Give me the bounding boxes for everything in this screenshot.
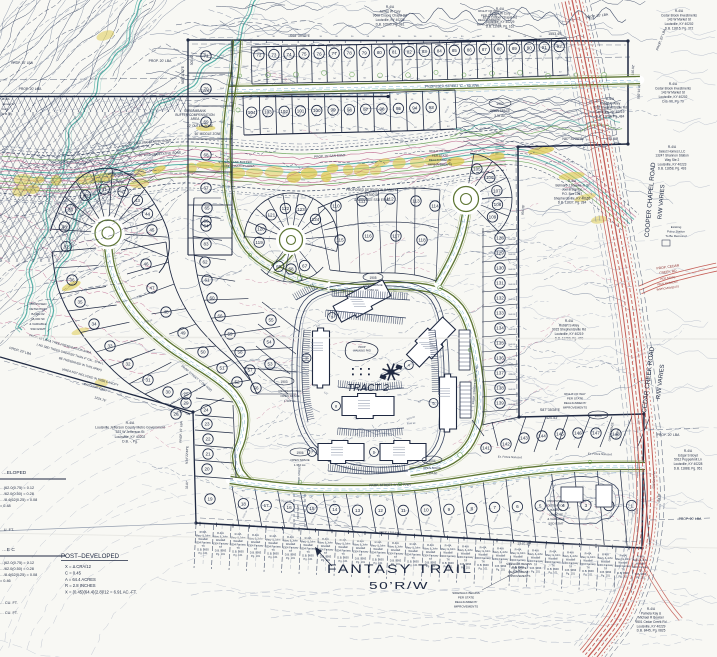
svg-text:Woodall: Woodall	[583, 559, 593, 563]
svg-text:R-4/A: R-4/A	[567, 551, 574, 555]
svg-text:IMPROVEMENTS: IMPROVEMENTS	[428, 163, 452, 167]
svg-text:Pg. 101: Pg. 101	[601, 574, 610, 578]
svg-text:Trl: Trl	[307, 550, 310, 554]
svg-text:Mary & John: Mary & John	[563, 554, 578, 558]
svg-text:R-4/A: R-4/A	[126, 421, 135, 425]
svg-text:38: 38	[62, 225, 68, 230]
svg-text:Woodall: Woodall	[426, 550, 436, 554]
svg-text:99: 99	[331, 108, 337, 113]
svg-text:TRACT 2: TRACT 2	[347, 383, 389, 394]
svg-text:9304 Fantasy: 9304 Fantasy	[335, 548, 351, 552]
svg-text:34: 34	[91, 322, 97, 327]
svg-text:86: 86	[467, 48, 473, 53]
svg-text:D.B. 9993: D.B. 9993	[355, 556, 367, 560]
svg-text:94: 94	[412, 106, 418, 111]
svg-text:45: 45	[149, 228, 155, 233]
svg-text:141: 141	[482, 446, 490, 451]
svg-text:COMPENSATION AREA: COMPENSATION AREA	[222, 164, 255, 168]
svg-text:…U. FT.: …U. FT.	[0, 528, 14, 532]
svg-text:Louisville Jefferson County Me: Louisville Jefferson County Metro Govern…	[95, 426, 165, 430]
svg-text:165.02': 165.02'	[631, 64, 636, 75]
svg-text:22' OUTER ZONE: 22' OUTER ZONE	[100, 180, 124, 184]
svg-text:1902: 1902	[496, 102, 504, 106]
svg-text:9040 SF: 9040 SF	[508, 359, 516, 361]
svg-text:R-4/A: R-4/A	[497, 547, 504, 551]
svg-text:18: 18	[241, 501, 247, 506]
svg-text:R-4/A: R-4/A	[287, 535, 294, 539]
svg-text:Mary & John: Mary & John	[458, 548, 473, 552]
svg-text:Pg. 101: Pg. 101	[199, 551, 208, 555]
svg-text:RIGHT OF WAY: RIGHT OF WAY	[429, 149, 451, 153]
svg-text:934.36': 934.36'	[521, 204, 526, 215]
svg-text:1.36± Ac.: 1.36± Ac.	[426, 471, 438, 475]
svg-text:C = 0.45: C = 0.45	[65, 570, 82, 575]
svg-text:PROP. STREET 'A' (50' R/W): PROP. STREET 'A' (50' R/W)	[369, 483, 410, 488]
svg-text:120: 120	[257, 227, 265, 232]
svg-text:44: 44	[145, 211, 151, 216]
svg-text:Mary & John: Mary & John	[528, 552, 543, 556]
svg-text:23: 23	[204, 422, 210, 427]
svg-text:103: 103	[264, 109, 272, 114]
svg-text:WALKING PAD: WALKING PAD	[353, 348, 371, 352]
svg-text:D.B. 9993: D.B. 9993	[600, 570, 612, 574]
svg-text:Woodall: Woodall	[356, 546, 366, 550]
svg-text:OPEN SPACE: OPEN SPACE	[290, 458, 309, 462]
svg-text:Woodall: Woodall	[496, 554, 506, 558]
svg-text:IMPROVEMENTS: IMPROVEMENTS	[563, 406, 587, 410]
svg-text:Pg. 101: Pg. 101	[514, 569, 523, 573]
svg-text:46: 46	[143, 262, 149, 267]
svg-text:R-4/A: R-4/A	[445, 544, 452, 548]
svg-text:Woodall: Woodall	[391, 548, 401, 552]
svg-text:85: 85	[452, 48, 458, 53]
svg-text:21: 21	[205, 452, 211, 457]
svg-text:Woodall: Woodall	[566, 558, 576, 562]
svg-text:96: 96	[379, 107, 385, 112]
svg-text:…(62.0(0.75) = 0.12: …(62.0(0.75) = 0.12	[0, 561, 34, 565]
svg-text:104: 104	[248, 110, 256, 115]
svg-text:FANTASY TRAIL: FANTASY TRAIL	[327, 564, 473, 576]
svg-text:35: 35	[77, 300, 83, 305]
svg-text:119: 119	[255, 240, 263, 245]
svg-text:Woodall: Woodall	[513, 555, 523, 559]
svg-text:Trl: Trl	[377, 554, 380, 558]
svg-text:Mary & John: Mary & John	[511, 551, 526, 555]
svg-text:PROP. STREET 'F': PROP. STREET 'F'	[230, 120, 235, 144]
svg-text:IMPROVEMENTS: IMPROVEMENTS	[454, 605, 478, 609]
svg-text:…ELOPED: …ELOPED	[2, 470, 27, 476]
svg-text:1.33± Ac.: 1.33± Ac.	[284, 399, 297, 403]
svg-text:124: 124	[312, 217, 320, 222]
svg-text:77: 77	[332, 51, 338, 56]
svg-text:136: 136	[496, 356, 504, 361]
svg-text:Trl: Trl	[534, 563, 537, 567]
svg-text:131: 131	[496, 281, 504, 286]
svg-text:9040 SF: 9040 SF	[508, 314, 516, 316]
svg-text:9304 Fantasy: 9304 Fantasy	[230, 543, 246, 547]
svg-text:Pg. 101: Pg. 101	[549, 571, 558, 575]
svg-text:Michael R Bowser: Michael R Bowser	[638, 616, 665, 620]
svg-text:1003: 1003	[594, 414, 601, 418]
svg-text:PROP. 20' LBA: PROP. 20' LBA	[149, 59, 173, 63]
svg-text:PER STATE: PER STATE	[458, 596, 474, 600]
svg-text:78: 78	[347, 51, 353, 56]
svg-text:9304 Fantasy: 9304 Fantasy	[580, 562, 596, 566]
svg-text:Mary & John: Mary & John	[388, 544, 403, 548]
svg-text:Woodall: Woodall	[531, 556, 541, 560]
svg-text:D.B. 9993: D.B. 9993	[372, 557, 384, 561]
svg-text:9040 SF: 9040 SF	[508, 374, 516, 376]
svg-text:R-4/A: R-4/A	[515, 548, 522, 552]
svg-text:Pg. 101: Pg. 101	[496, 568, 505, 572]
svg-text:31: 31	[145, 378, 151, 383]
svg-text:RIGHT OF WAY: RIGHT OF WAY	[564, 392, 586, 396]
svg-text:13247 Shannon Station: 13247 Shannon Station	[655, 154, 689, 158]
svg-text:22: 22	[205, 437, 211, 442]
svg-text:1004: 1004	[428, 459, 435, 463]
svg-text:Mary & John: Mary & John	[423, 546, 438, 550]
svg-text:D.B. 9993: D.B. 9993	[617, 571, 629, 575]
svg-text:Trl: Trl	[604, 567, 607, 571]
svg-text:Mary & John: Mary & John	[476, 549, 491, 553]
svg-text:138: 138	[496, 386, 504, 391]
svg-text:9304 Fantasy: 9304 Fantasy	[615, 564, 631, 568]
svg-text:114: 114	[431, 204, 439, 209]
svg-text:9304 Fantasy: 9304 Fantasy	[248, 543, 264, 547]
svg-text:133: 133	[496, 311, 504, 316]
svg-text:Trl: Trl	[587, 566, 590, 570]
svg-text:16: 16	[287, 505, 293, 510]
svg-text:9304 Fantasy: 9304 Fantasy	[195, 541, 211, 545]
svg-text:N05°11′02″E: N05°11′02″E	[181, 66, 185, 84]
svg-text:9304 Fantasy: 9304 Fantasy	[528, 559, 544, 563]
svg-text:PROP. 15' LBA: PROP. 15' LBA	[179, 420, 184, 442]
svg-text:9040 SF: 9040 SF	[508, 269, 516, 271]
svg-text:101: 101	[297, 109, 305, 114]
svg-text:72: 72	[256, 53, 262, 58]
svg-text:39: 39	[68, 207, 74, 212]
svg-text:144’: 144’	[220, 88, 225, 90]
svg-text:Trl: Trl	[499, 561, 502, 565]
svg-text:SSD ESMT: SSD ESMT	[548, 522, 564, 526]
svg-text:Trl: Trl	[342, 552, 345, 556]
svg-text:59: 59	[227, 332, 233, 337]
svg-text:= 0.46: = 0.46	[0, 579, 11, 583]
svg-text:76: 76	[317, 51, 323, 56]
svg-text:84: 84	[437, 49, 443, 54]
svg-text:90: 90	[527, 45, 533, 50]
svg-text:9015 Shepherdsville Rd: 9015 Shepherdsville Rd	[552, 328, 586, 332]
svg-text:Woodall: Woodall	[636, 562, 646, 566]
svg-text:9040 SF: 9040 SF	[508, 344, 516, 346]
svg-text:Pg. 101: Pg. 101	[619, 575, 628, 579]
svg-text:…/8.4(62(0.25) = 0.08: …/8.4(62(0.25) = 0.08	[0, 573, 37, 577]
svg-text:OPEN SPACE: OPEN SPACE	[363, 283, 382, 287]
svg-text:Trl: Trl	[237, 546, 240, 550]
svg-text:AREA: AREA	[191, 117, 201, 121]
svg-text:Pg. 101: Pg. 101	[286, 556, 295, 560]
svg-text:Trl: Trl	[447, 558, 450, 562]
svg-text:102: 102	[280, 109, 288, 114]
svg-text:49: 49	[180, 331, 186, 336]
svg-text:52: 52	[234, 380, 240, 385]
svg-text:5912 Pepperknit Ln: 5912 Pepperknit Ln	[674, 458, 702, 462]
svg-text:Woodall: Woodall	[461, 552, 471, 556]
svg-text:PROP. STREET: PROP. STREET	[297, 465, 302, 484]
svg-text:X = Δ CRA/12: X = Δ CRA/12	[65, 564, 92, 569]
svg-text:Mary & John: Mary & John	[493, 550, 508, 554]
svg-text:James W: James W	[2, 102, 15, 106]
svg-text:D.B. 9993: D.B. 9993	[215, 549, 227, 553]
svg-text:82: 82	[407, 49, 413, 54]
svg-text:458.96': 458.96'	[657, 493, 661, 503]
svg-text:Mary & John: Mary & John	[266, 537, 281, 541]
svg-text:93: 93	[429, 105, 435, 110]
svg-text:… CU. FT.: … CU. FT.	[0, 601, 18, 605]
svg-text:Woodall: Woodall	[321, 544, 331, 548]
svg-text:D.B. -, Pg.: D.B. -, Pg.	[122, 439, 138, 443]
svg-text:74: 74	[286, 52, 292, 57]
svg-text:PROPOSED DETENTION BASIN #2: PROPOSED DETENTION BASIN #2	[346, 188, 398, 192]
svg-text:67: 67	[203, 186, 209, 191]
svg-text:Mary & John: Mary & John	[616, 557, 631, 561]
svg-text:Mary & John: Mary & John	[353, 542, 368, 546]
svg-text:OPEN SPACE: OPEN SPACE	[280, 394, 299, 398]
svg-text:57: 57	[247, 368, 253, 373]
svg-text:75: 75	[301, 52, 307, 57]
svg-text:50: 50	[200, 350, 206, 355]
svg-text:Woodall: Woodall	[251, 540, 261, 544]
svg-text:143: 143	[520, 436, 528, 441]
svg-text:80: 80	[377, 50, 383, 55]
svg-text:R-4/A: R-4/A	[462, 545, 469, 549]
svg-text:33.87': 33.87'	[185, 480, 189, 489]
svg-text:Trl: Trl	[517, 562, 520, 566]
svg-text:60' MIDDLE ZONE: 60' MIDDLE ZONE	[195, 132, 222, 136]
svg-text:Mary & John: Mary & John	[336, 541, 351, 545]
svg-text:41: 41	[102, 187, 108, 192]
svg-text:24,500 SF: 24,500 SF	[365, 193, 380, 197]
svg-text:Trl: Trl	[569, 565, 572, 569]
svg-text:Mary & John: Mary & John	[441, 547, 456, 551]
svg-text:Trl: Trl	[254, 547, 257, 551]
svg-text:Woodall: Woodall	[618, 561, 628, 565]
svg-text:9040 SF: 9040 SF	[508, 329, 516, 331]
svg-text:Mary & John: Mary & John	[581, 555, 596, 559]
svg-text:PROPOSED: PROPOSED	[547, 499, 565, 503]
svg-text:Trl: Trl	[219, 545, 222, 549]
svg-text:Woodall: Woodall	[601, 560, 611, 564]
svg-text:Pg. 101: Pg. 101	[216, 552, 225, 556]
svg-text:PROP: PROP	[358, 345, 366, 349]
svg-text:PER STATE: PER STATE	[432, 154, 448, 158]
svg-text:9015 Shepherdsville Rd: 9015 Shepherdsville Rd	[593, 106, 627, 110]
svg-text:9304 Fantasy: 9304 Fantasy	[300, 546, 316, 550]
svg-text:144’: 144’	[220, 220, 225, 222]
svg-text:28: 28	[173, 412, 179, 417]
svg-text:69: 69	[276, 264, 282, 269]
svg-text:52’: 52’	[418, 402, 422, 404]
svg-text:9304 Fantasy: 9304 Fantasy	[283, 545, 299, 549]
svg-text:Joel B Brerton: Joel B Brerton	[562, 188, 582, 192]
svg-text:79: 79	[362, 50, 368, 55]
svg-text:58: 58	[237, 350, 243, 355]
svg-text:Mary & John: Mary & John	[598, 556, 613, 560]
svg-text:70: 70	[203, 87, 209, 92]
svg-text:SSD ESMT: SSD ESMT	[30, 327, 46, 331]
svg-text:D.B. 9993: D.B. 9993	[267, 551, 279, 555]
svg-text:130: 130	[496, 266, 504, 271]
svg-text:Mary & John: Mary & John	[318, 540, 333, 544]
svg-text:113: 113	[412, 199, 420, 204]
svg-text:9304 Fantasy: 9304 Fantasy	[440, 554, 456, 558]
svg-text:116: 116	[364, 234, 372, 239]
svg-text:A = 64.4 ACRES: A = 64.4 ACRES	[65, 577, 96, 582]
svg-text:83: 83	[203, 242, 209, 247]
svg-text:143 W Market St: 143 W Market St	[661, 91, 685, 95]
svg-text:43: 43	[135, 198, 141, 203]
svg-text:134: 134	[496, 326, 504, 331]
svg-text:R-4/A: R-4/A	[427, 543, 434, 547]
svg-text:10: 10	[424, 508, 430, 513]
svg-text:9040 SF: 9040 SF	[508, 389, 516, 391]
svg-text:R-4/A: R-4/A	[217, 531, 224, 535]
svg-text:144’: 144’	[220, 55, 225, 57]
svg-text:Trl: Trl	[622, 568, 625, 572]
svg-text:139: 139	[496, 401, 504, 406]
svg-text:30: 30	[165, 390, 171, 395]
svg-text:…/8.4(62(0.25) = 0.08: …/8.4(62(0.25) = 0.08	[0, 498, 37, 502]
svg-text:D.B. 10530, Pg. 981: D.B. 10530, Pg. 981	[376, 22, 405, 26]
svg-text:9: 9	[448, 507, 451, 512]
svg-text:145: 145	[556, 432, 564, 437]
svg-text:5: 5	[539, 504, 542, 509]
svg-text:Trl: Trl	[482, 560, 485, 564]
svg-text:D.B. 9993: D.B. 9993	[582, 569, 594, 573]
svg-text:135: 135	[496, 341, 504, 346]
svg-text:51: 51	[219, 366, 225, 371]
svg-text:DETENTION: DETENTION	[29, 307, 46, 311]
svg-text:123: 123	[297, 207, 305, 212]
svg-text:129: 129	[496, 251, 504, 256]
svg-text:420.53': 420.53'	[546, 416, 558, 420]
svg-text:12: 12	[378, 508, 384, 513]
svg-text:110: 110	[332, 204, 340, 209]
svg-text:…E C: …E C	[2, 547, 15, 553]
svg-text:& VARIABLE: & VARIABLE	[547, 517, 564, 521]
svg-text:S87°35′28″E: S87°35′28″E	[540, 408, 561, 412]
svg-text:& VARIABLE: & VARIABLE	[29, 322, 46, 326]
svg-text:PROPOSED: PROPOSED	[29, 302, 47, 306]
svg-text:89: 89	[512, 46, 518, 51]
svg-text:42: 42	[120, 189, 126, 194]
svg-text:105: 105	[473, 167, 481, 172]
svg-text:Woodall: Woodall	[338, 545, 348, 549]
svg-text:D.B. 9993: D.B. 9993	[547, 567, 559, 571]
svg-text:9304 Fantasy: 9304 Fantasy	[388, 551, 404, 555]
svg-text:55: 55	[268, 318, 274, 323]
svg-text:115: 115	[336, 238, 344, 243]
svg-text:73: 73	[271, 52, 277, 57]
svg-text:Pg. 101: Pg. 101	[566, 572, 575, 576]
svg-text:108: 108	[494, 202, 502, 207]
svg-text:69: 69	[203, 120, 209, 125]
svg-text:1903: 1903	[280, 380, 287, 384]
svg-text:61: 61	[204, 278, 210, 283]
svg-text:16,400 SF: 16,400 SF	[549, 513, 563, 517]
svg-text:Trl: Trl	[289, 549, 292, 553]
svg-text:R-4/A: R-4/A	[252, 533, 259, 537]
svg-text:D.B. 8445, Pg. 0825: D.B. 8445, Pg. 0825	[637, 629, 666, 633]
svg-text:Pg. 101: Pg. 101	[234, 553, 243, 557]
svg-text:91: 91	[542, 45, 548, 50]
svg-text:68: 68	[203, 153, 209, 158]
svg-text:Woodall: Woodall	[548, 557, 558, 561]
svg-text:1906: 1906	[296, 451, 303, 455]
svg-text:147: 147	[592, 431, 600, 436]
svg-text:R-4/A: R-4/A	[270, 534, 277, 538]
svg-text:POST–DEVELOPED: POST–DEVELOPED	[61, 553, 120, 560]
svg-text:REALIGNMENT/: REALIGNMENT/	[455, 600, 478, 604]
svg-text:65: 65	[204, 206, 210, 211]
svg-text:20: 20	[204, 467, 210, 472]
svg-text:13: 13	[355, 508, 361, 513]
svg-text:66: 66	[217, 314, 223, 319]
svg-text:R-4/A: R-4/A	[410, 542, 417, 546]
svg-text:D.B. 9993: D.B. 9993	[565, 568, 577, 572]
svg-text:…(62.0(0.75) = 0.12: …(62.0(0.75) = 0.12	[0, 486, 34, 490]
svg-text:3.3± Ac.: 3.3± Ac.	[494, 114, 506, 118]
svg-text:56: 56	[253, 386, 259, 391]
svg-text:68: 68	[288, 267, 294, 272]
svg-text:N34°22′44″E: N34°22′44″E	[185, 446, 190, 464]
svg-text:88: 88	[497, 47, 503, 52]
svg-text:PROP. 20' LBA: PROP. 20' LBA	[11, 61, 33, 65]
svg-text:24: 24	[203, 408, 209, 413]
svg-text:25: 25	[183, 392, 189, 397]
svg-text:132: 132	[496, 296, 504, 301]
svg-text:9040 SF: 9040 SF	[508, 284, 516, 286]
svg-text:527 W Jefferson St: 527 W Jefferson St	[116, 430, 145, 434]
svg-text:11: 11	[401, 508, 406, 513]
svg-text:Pg. 101: Pg. 101	[251, 554, 260, 558]
svg-text:6: 6	[516, 504, 519, 509]
svg-text:9304 Fantasy: 9304 Fantasy	[265, 544, 281, 548]
svg-text:120’: 120’	[483, 503, 488, 505]
svg-text:D.B. 9993: D.B. 9993	[495, 564, 507, 568]
svg-text:64: 64	[203, 224, 209, 229]
svg-text:D.B. 9993: D.B. 9993	[512, 565, 524, 569]
svg-text:95: 95	[396, 106, 402, 111]
svg-text:D.B. 9993: D.B. 9993	[302, 553, 314, 557]
svg-text:R-4/A: R-4/A	[585, 552, 592, 556]
svg-text:R = 2.8 INCHES: R = 2.8 INCHES	[65, 583, 96, 588]
svg-text:R-4/A: R-4/A	[550, 550, 557, 554]
svg-text:Trl: Trl	[324, 551, 327, 555]
svg-text:& VARIABLE SSD ESMT: & VARIABLE SSD ESMT	[354, 198, 390, 202]
svg-text:142: 142	[502, 442, 510, 447]
svg-text:9304 Fantasy: 9304 Fantasy	[213, 542, 229, 546]
svg-text:Trl: Trl	[202, 544, 205, 548]
svg-text:D.B. 9993: D.B. 9993	[197, 548, 209, 552]
svg-text:Woodall: Woodall	[373, 547, 383, 551]
svg-text:Woodall: Woodall	[408, 549, 418, 553]
svg-text:87: 87	[482, 47, 488, 52]
svg-text:106: 106	[486, 175, 494, 180]
svg-text:3: 3	[585, 503, 588, 508]
svg-text:Trl: Trl	[412, 556, 415, 560]
svg-text:14: 14	[332, 507, 338, 512]
